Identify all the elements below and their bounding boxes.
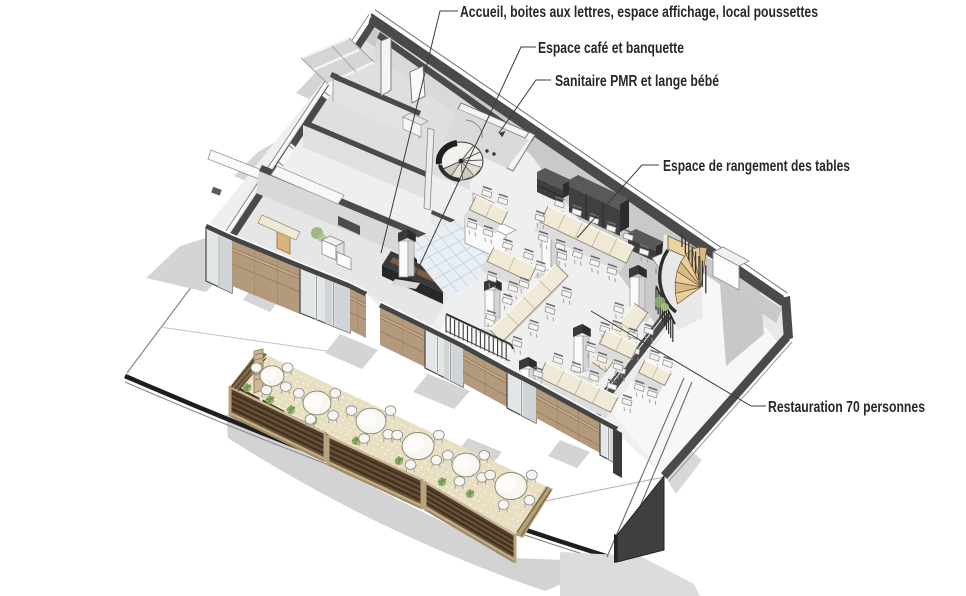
svg-text:Espace café et banquette: Espace café et banquette	[538, 40, 684, 57]
svg-text:Accueil, boites aux lettres, e: Accueil, boites aux lettres, espace affi…	[460, 4, 818, 21]
svg-text:Sanitaire PMR et lange bébé: Sanitaire PMR et lange bébé	[555, 73, 719, 90]
svg-text:Espace de rangement des tables: Espace de rangement des tables	[663, 158, 850, 175]
svg-text:Restauration 70 personnes: Restauration 70 personnes	[768, 399, 925, 416]
